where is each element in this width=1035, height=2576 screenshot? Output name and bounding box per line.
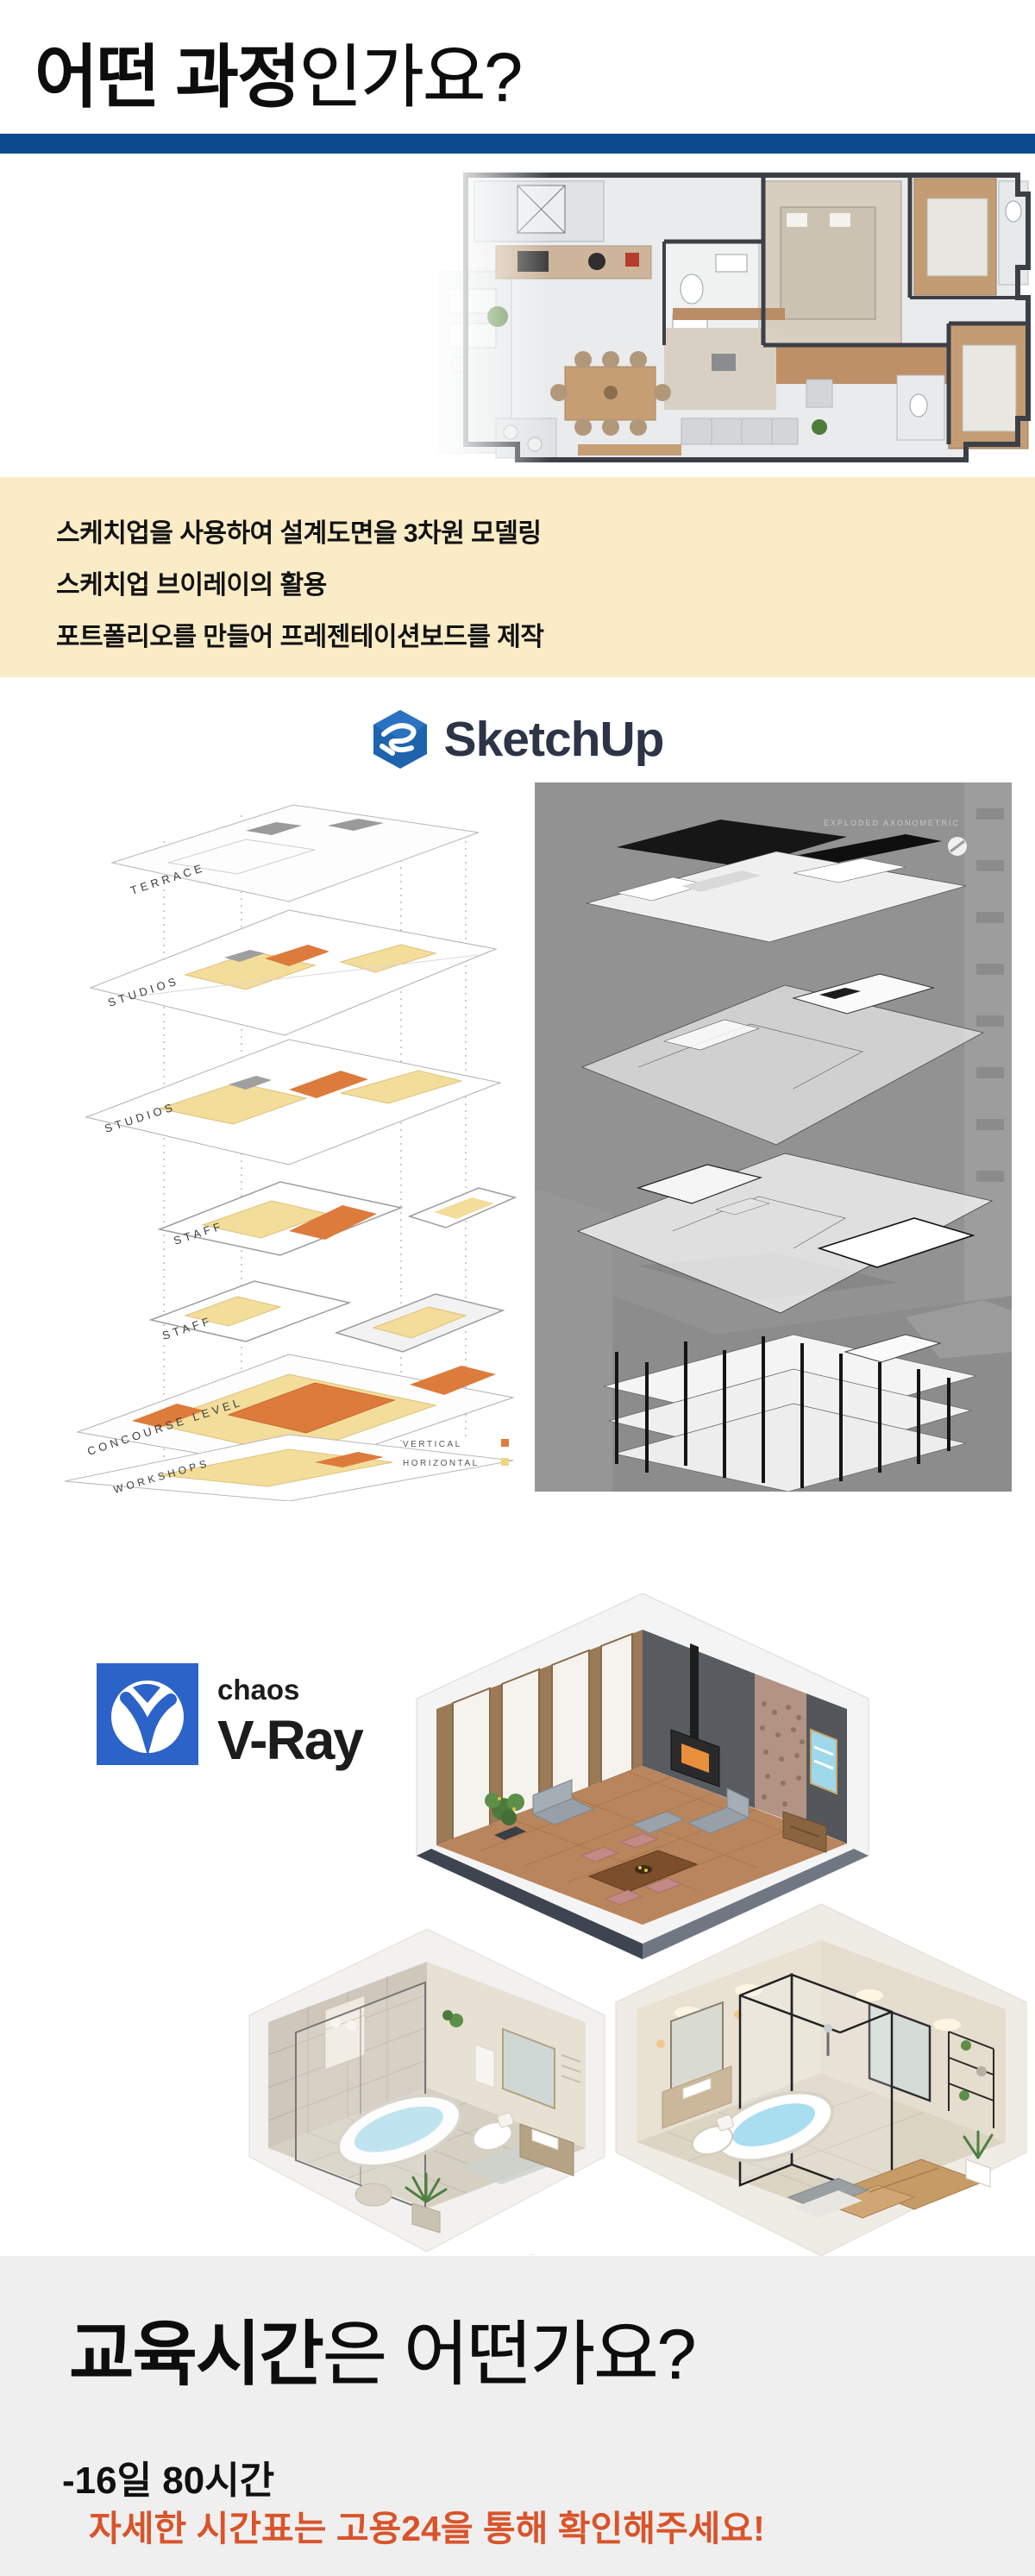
page-title: 어떤 과정인가요? xyxy=(34,40,521,116)
legend-vertical-label: VERTICAL xyxy=(403,1440,462,1449)
bathroom-isometric-render-left xyxy=(244,1926,610,2255)
schedule-title-bold: 교육시간 xyxy=(69,2315,323,2394)
bathroom-isometric-render-right xyxy=(611,1901,1032,2259)
legend-horizontal-swatch xyxy=(501,1458,509,1466)
legend-horizontal-label: HORIZONTAL xyxy=(403,1459,480,1468)
chaos-brand-label: chaos xyxy=(217,1674,362,1706)
feature-line: 스케치업을 사용하여 설계도면을 3차원 모델링 xyxy=(56,512,544,550)
floor-plan-left-fade xyxy=(414,160,1035,473)
render-caption: EXPLODED AXONOMETRIC xyxy=(824,819,960,827)
sketchup-wordmark: SketchUp xyxy=(444,711,664,768)
feature-box: 스케치업을 사용하여 설계도면을 3차원 모델링 스케치업 브이레이의 활용 포… xyxy=(0,477,1035,677)
vray-icon xyxy=(97,1663,198,1765)
sketchup-logo: SketchUp xyxy=(0,701,1035,778)
schedule-notice: 자세한 시간표는 고용24을 통해 확인해주세요! xyxy=(89,2499,765,2551)
schedule-title: 교육시간은 어떤가요? xyxy=(69,2318,694,2392)
exploded-axonometric-render: EXPLODED AXONOMETRIC xyxy=(535,782,1012,1492)
legend-vertical-swatch xyxy=(501,1439,509,1447)
page-title-bold: 어떤 과정 xyxy=(34,39,299,116)
schedule-duration: -16일 80시간 xyxy=(62,2449,274,2504)
schedule-title-light: 은 어떤가요? xyxy=(323,2315,695,2394)
schedule-section: 교육시간은 어떤가요? -16일 80시간 자세한 시간표는 고용24을 통해 … xyxy=(0,2256,1035,2576)
feature-line: 스케치업 브이레이의 활용 xyxy=(56,563,544,601)
floor-plan-image xyxy=(414,160,1035,473)
exploded-axonometric-drawing: TERRACE STUDIOS STUDIOS STAFF STAFF CONC… xyxy=(30,781,526,1501)
vray-product-label: V-Ray xyxy=(217,1708,362,1772)
title-underline-bar xyxy=(0,134,1035,154)
feature-line: 포트폴리오를 만들어 프레젠테이션보드를 제작 xyxy=(56,615,544,653)
page-title-light: 인가요? xyxy=(299,39,521,116)
promo-page: 어떤 과정인가요? xyxy=(0,0,1035,2576)
vray-wordmark-block: chaos V-Ray xyxy=(217,1674,362,1772)
sketchup-cube-icon xyxy=(372,708,429,770)
